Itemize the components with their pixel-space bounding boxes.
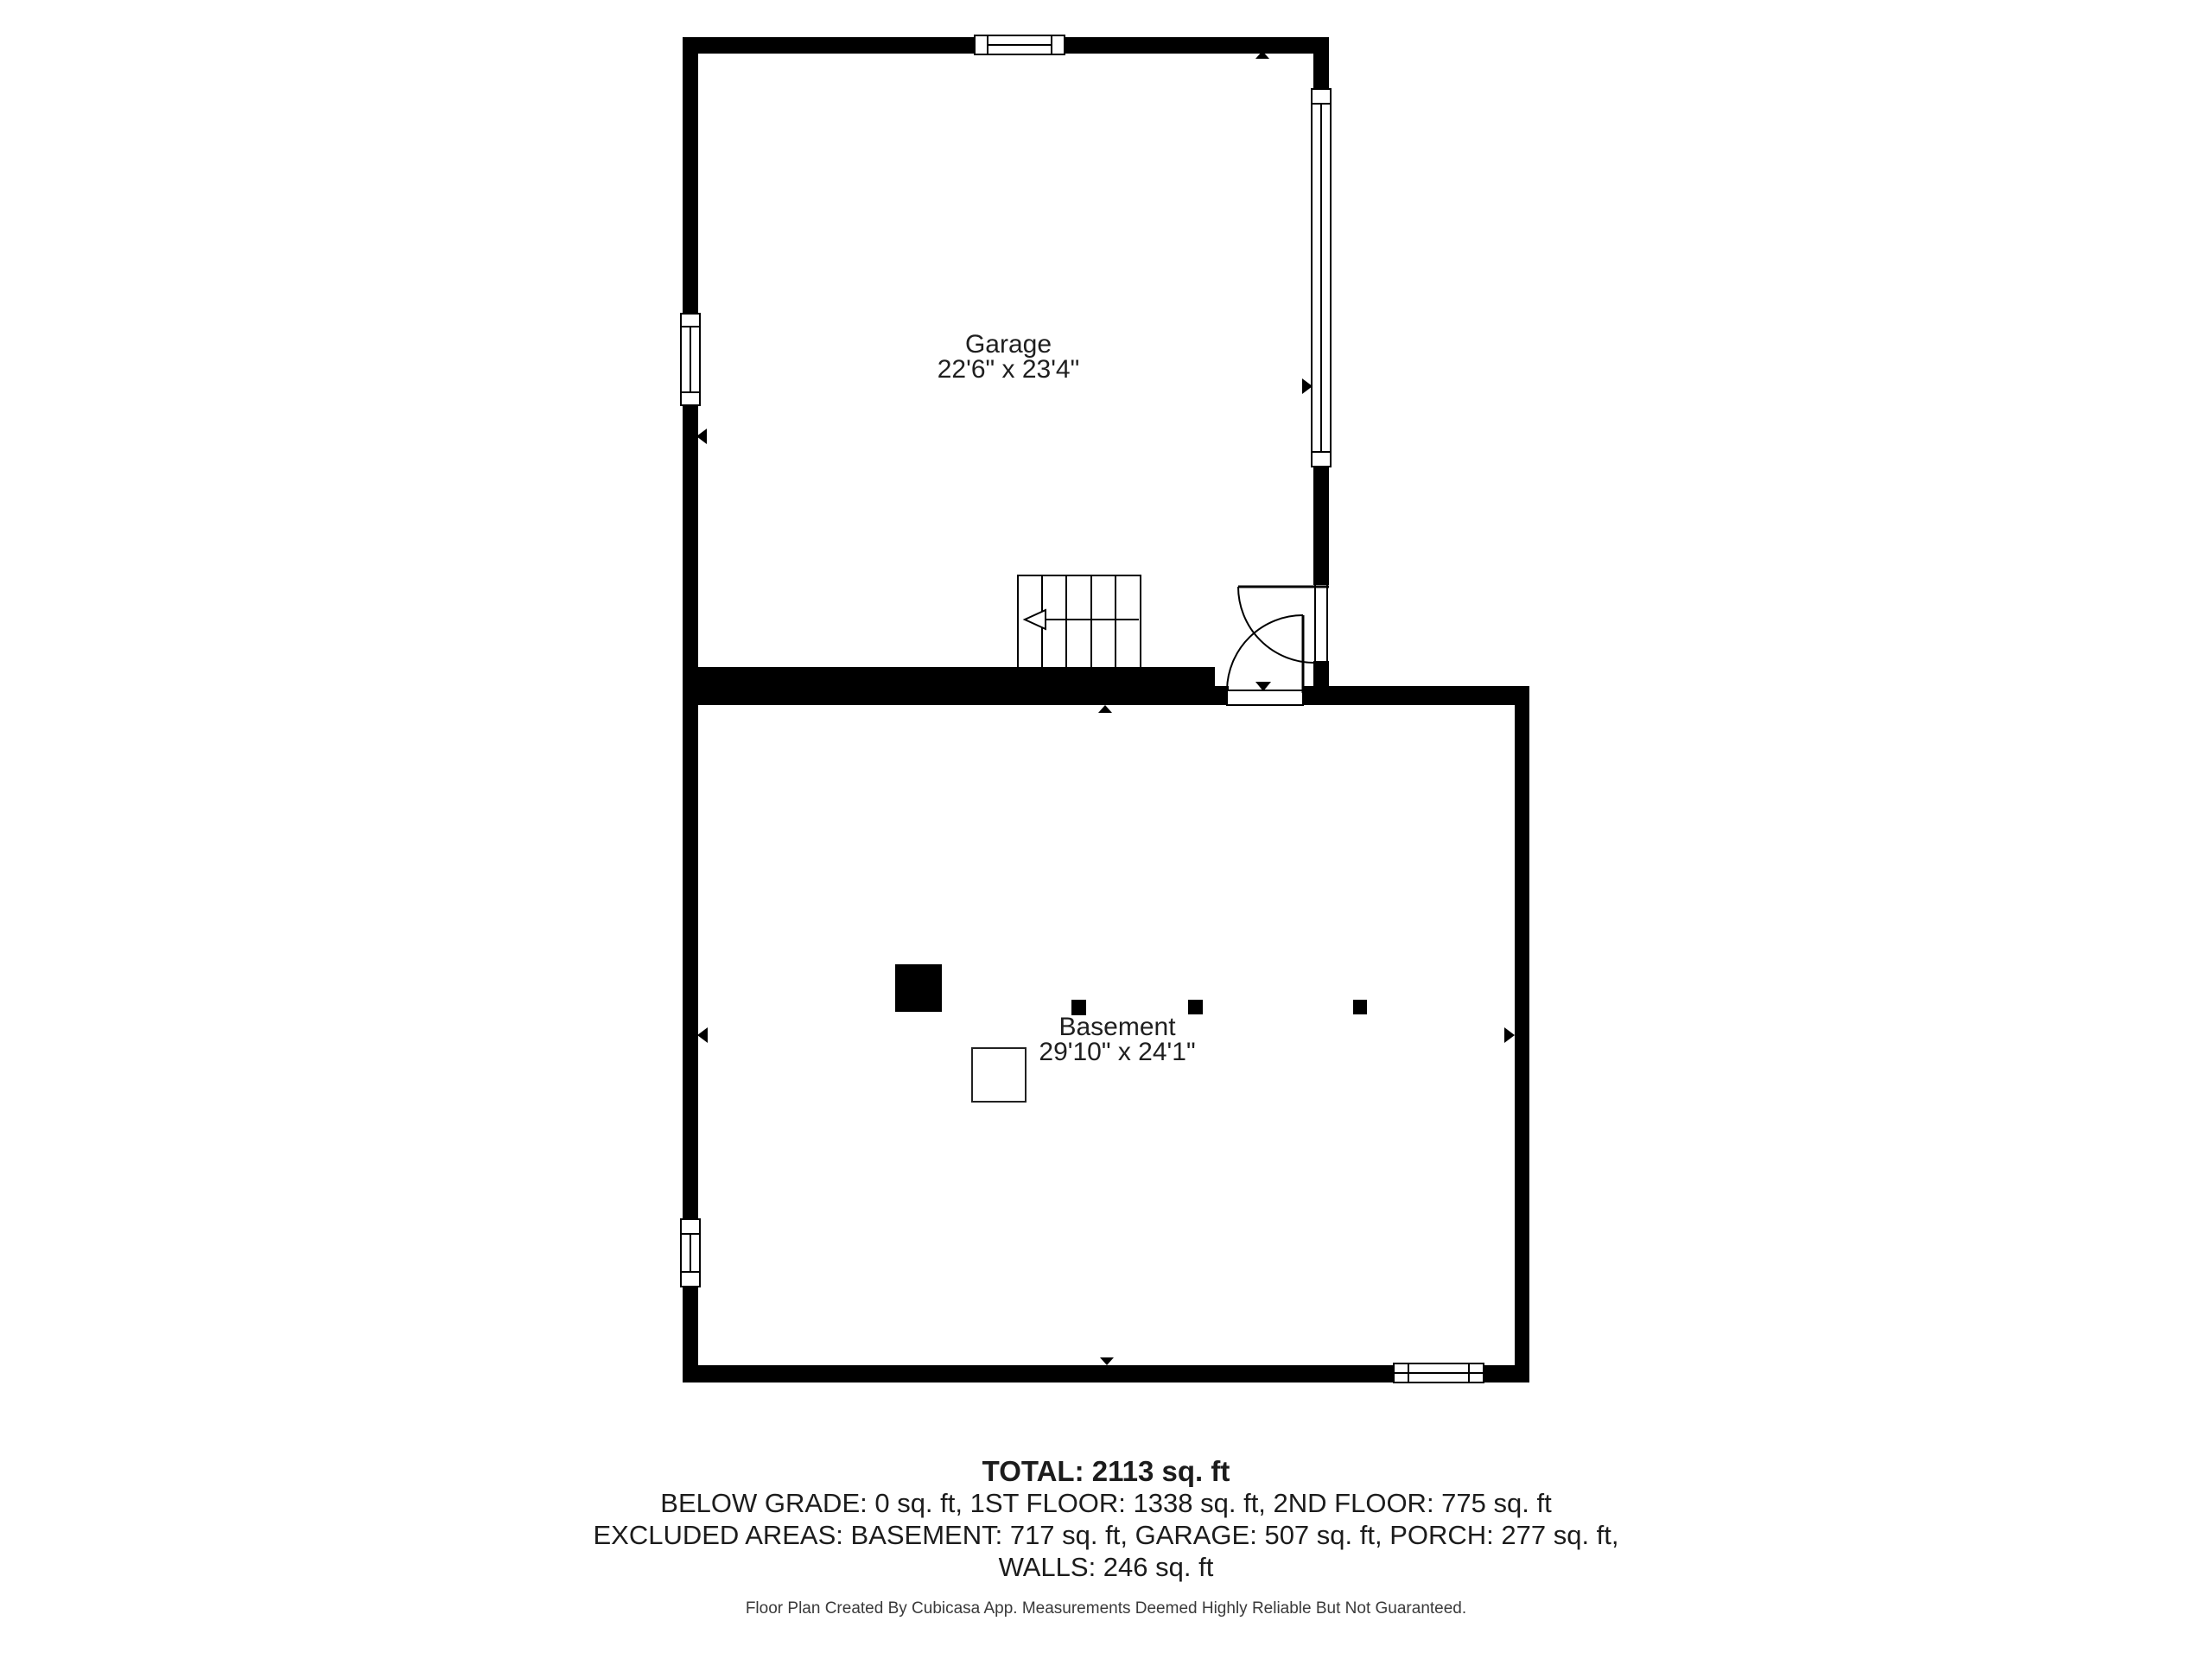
disclaimer-text: Floor Plan Created By Cubicasa App. Meas… <box>0 1599 2212 1618</box>
support-post <box>1188 1000 1203 1014</box>
excluded-areas: EXCLUDED AREAS: BASEMENT: 717 sq. ft, GA… <box>0 1519 2212 1551</box>
floor-areas: BELOW GRADE: 0 sq. ft, 1ST FLOOR: 1338 s… <box>0 1487 2212 1519</box>
basement-left-window <box>681 1219 700 1287</box>
basement-bottom-window <box>1394 1363 1484 1382</box>
area-summary: TOTAL: 2113 sq. ft BELOW GRADE: 0 sq. ft… <box>0 1455 2212 1583</box>
windows <box>681 35 1484 1382</box>
basement-top-wall-right <box>1303 686 1529 705</box>
wall-arrow-down-icon <box>1100 1357 1114 1365</box>
wall-arrow-right-icon <box>1504 1027 1515 1043</box>
wall-arrow-up-icon <box>1098 705 1112 713</box>
room-dimensions: 29'10" x 24'1" <box>1039 1039 1195 1065</box>
garage-label: Garage 22'6" x 23'4" <box>938 332 1080 382</box>
support-post <box>1353 1000 1367 1014</box>
basement-top-wall-left <box>683 686 1229 705</box>
floor-plan-page: Garage 22'6" x 23'4" Basement 29'10" x 2… <box>0 0 2212 1659</box>
basement-label: Basement 29'10" x 24'1" <box>1039 1014 1195 1065</box>
staircase <box>1018 575 1141 667</box>
open-shaft-box <box>972 1048 1026 1102</box>
door-swing-arc <box>1227 615 1303 690</box>
left-wall <box>683 37 698 1382</box>
wall-areas: WALLS: 246 sq. ft <box>0 1551 2212 1583</box>
garage-top-window <box>975 35 1065 54</box>
room-dimensions: 22'6" x 23'4" <box>938 357 1080 382</box>
basement-right-wall <box>1515 686 1529 1382</box>
room-name: Basement <box>1039 1014 1195 1039</box>
total-area: TOTAL: 2113 sq. ft <box>0 1455 2212 1487</box>
exterior-door <box>1238 585 1329 663</box>
room-name: Garage <box>938 332 1080 357</box>
chimney-block <box>895 964 942 1012</box>
garage-right-window <box>1312 89 1331 467</box>
wall-arrow-left-icon <box>697 1027 708 1043</box>
garage-bottom-wall <box>683 667 1215 686</box>
door-threshold <box>1227 690 1303 705</box>
wall-markers <box>696 51 1515 1365</box>
garage-left-window <box>681 314 700 405</box>
floor-plan-drawing <box>0 0 2212 1659</box>
